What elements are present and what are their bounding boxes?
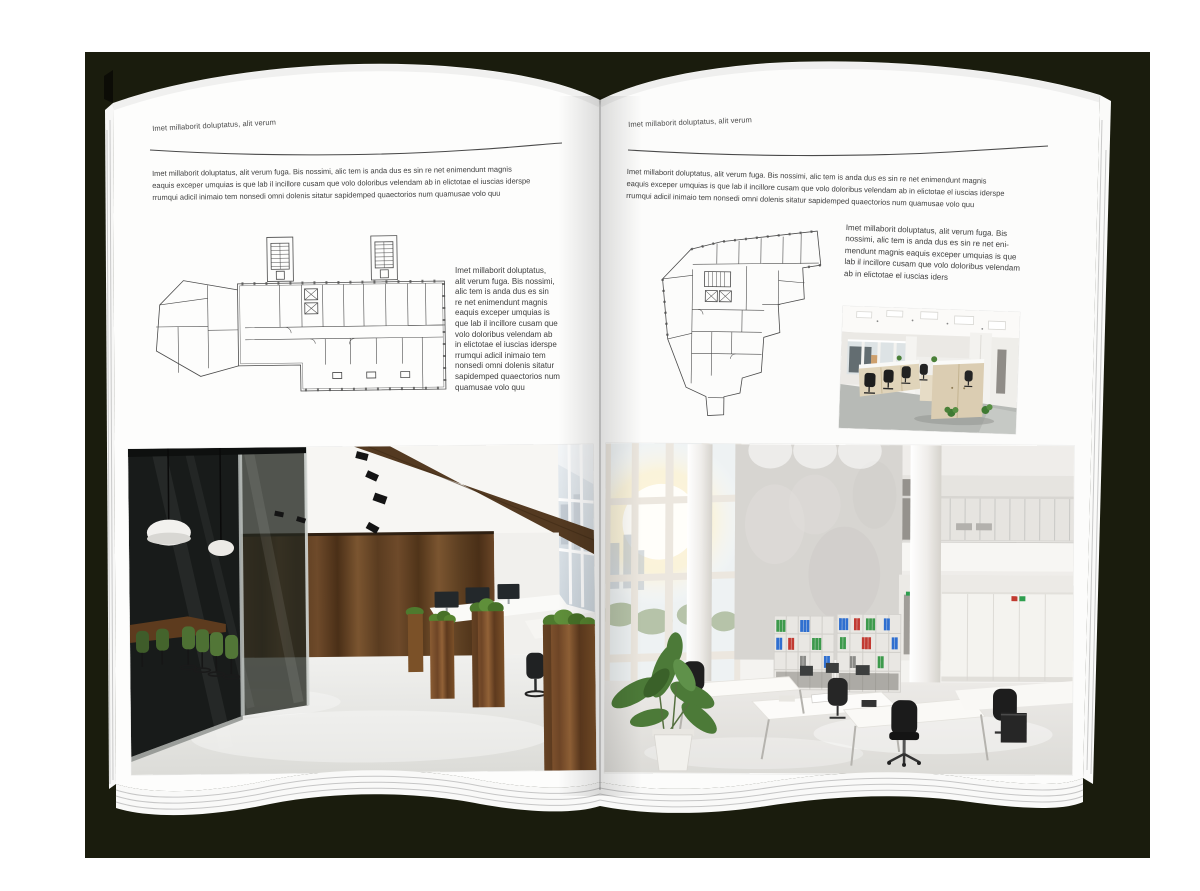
white-cabinets (941, 593, 1073, 682)
left-page-side-text: Imet millaborit doluptatus, alit verum f… (455, 266, 587, 393)
right-page-side-text: Imet millaborit doluptatus, alit verum f… (844, 222, 1081, 288)
office-photo-small (839, 306, 1020, 434)
exit-sign (1019, 596, 1025, 601)
left-page-intro: Imet millaborit doluptatus, alit verum f… (152, 163, 587, 205)
office-photo-left (128, 444, 596, 775)
column-left (686, 444, 712, 681)
office-photo-right (604, 443, 1074, 775)
fire-sign (1011, 596, 1017, 601)
magazine-mockup: Imet millaborit doluptatus, alit verum I… (0, 0, 1200, 891)
floor-plan-right (645, 219, 838, 422)
floor-plan-left (149, 231, 451, 415)
column-right (909, 445, 941, 686)
